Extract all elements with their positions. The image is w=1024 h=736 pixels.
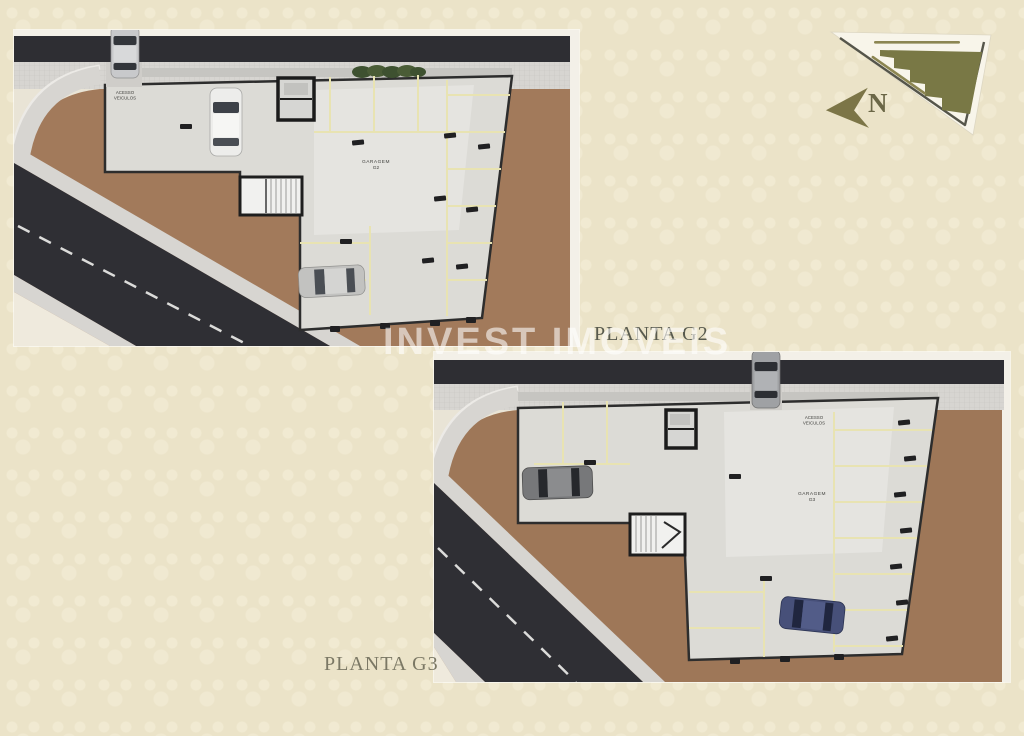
svg-text:VEICULOS: VEICULOS (803, 421, 825, 426)
plan-g2-drawing: ACESSO VEICULOS GARAGEM G2 (14, 30, 579, 346)
svg-text:VEICULOS: VEICULOS (114, 96, 136, 101)
north-label: N (868, 88, 888, 119)
plan-g3-image: ACESSO VEICULOS GARAGEM G3 (434, 352, 1010, 682)
elevator-shaft (278, 78, 314, 120)
plan-g3-title: PLANTA G3 (324, 653, 439, 676)
watermark: INVEST IMOVEIS (383, 321, 803, 364)
car-entering (111, 30, 139, 78)
street-top (14, 36, 570, 62)
elevator-shaft (666, 410, 696, 448)
floor-plan-sheet: ACESSO VEICULOS GARAGEM G2 (0, 0, 1024, 736)
slab-highlight (314, 85, 474, 235)
access-label: ACESSO (805, 415, 824, 420)
stairwell (240, 177, 302, 215)
garage-label: GARAGEM (798, 491, 826, 497)
plan-g2-image: ACESSO VEICULOS GARAGEM G2 (14, 30, 579, 346)
svg-text:G3: G3 (809, 497, 816, 503)
access-label: ACESSO (116, 90, 135, 95)
car-silver (298, 265, 365, 298)
garage-label: GARAGEM (362, 159, 390, 165)
retaining-wall (142, 68, 512, 77)
plan-g3-drawing: ACESSO VEICULOS GARAGEM G3 (434, 352, 1010, 682)
street-name-top-illegible (874, 41, 960, 44)
north-arrow-icon (824, 86, 904, 134)
car-dark (522, 466, 593, 500)
north-indicator: N (824, 86, 904, 134)
car-white (210, 88, 242, 156)
svg-text:G2: G2 (373, 165, 380, 171)
stairwell (630, 514, 685, 555)
car-blue (779, 596, 846, 635)
